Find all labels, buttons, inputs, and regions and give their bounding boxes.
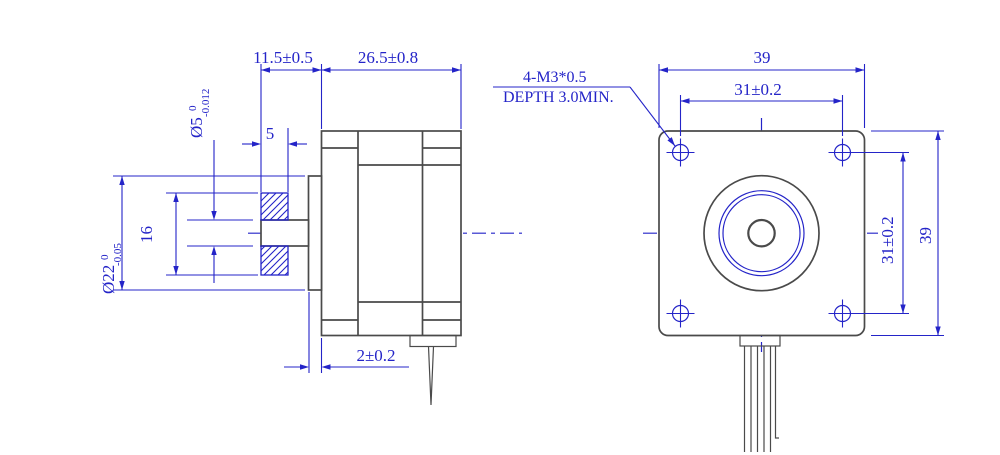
thread-note-line1: 4-M3*0.5 xyxy=(523,69,587,86)
dim-text-hole-pitch-vertical: 31±0.2 xyxy=(878,216,897,264)
dim-body-length: 26.5±0.8 xyxy=(322,48,462,129)
side-connector xyxy=(410,336,456,347)
dim-text-front-height: 39 xyxy=(916,227,935,244)
svg-text:16: 16 xyxy=(137,226,156,243)
dim-text-body-length: 26.5±0.8 xyxy=(358,48,418,67)
motor-body xyxy=(322,131,462,336)
pulley-section-bottom xyxy=(261,246,288,275)
dim-text-shaft-protrusion: 11.5±0.5 xyxy=(253,48,313,67)
front-view: 39 31±0.2 31±0.2 xyxy=(493,48,944,452)
side-view: 11.5±0.5 26.5±0.8 5 xyxy=(99,48,522,405)
dim-shaft-diameter: Ø5 0 -0.012 xyxy=(187,89,253,283)
dim-text-pilot-diameter: Ø22 0 -0.05 xyxy=(99,243,124,294)
front-lead-wires xyxy=(745,346,780,452)
thread-note: 4-M3*0.5 DEPTH 3.0MIN. xyxy=(493,69,677,148)
motor-body-outline xyxy=(322,131,462,336)
svg-text:0: 0 xyxy=(187,105,199,111)
dim-text-hole-pitch-horizontal: 31±0.2 xyxy=(734,80,782,99)
dim-text-pulley-width: 5 xyxy=(266,124,275,143)
front-connector xyxy=(740,336,780,347)
dim-shaft-protrusion: 11.5±0.5 xyxy=(253,48,321,192)
svg-text:-0.012: -0.012 xyxy=(200,89,212,117)
engineering-drawing: 11.5±0.5 26.5±0.8 5 xyxy=(0,0,1000,455)
svg-text:39: 39 xyxy=(916,227,935,244)
svg-text:Ø22: Ø22 xyxy=(99,265,118,294)
side-lead-wire xyxy=(429,347,434,406)
dim-text-pulley-diameter: 16 xyxy=(137,226,156,243)
dim-text-pilot-height: 2±0.2 xyxy=(356,346,395,365)
svg-text:-0.05: -0.05 xyxy=(112,243,124,266)
svg-text:0: 0 xyxy=(99,254,111,260)
dim-text-front-width: 39 xyxy=(754,48,771,67)
motor-shaft xyxy=(261,220,309,246)
dim-pulley-width: 5 xyxy=(242,124,307,192)
stepper-motor-drawing: 11.5±0.5 26.5±0.8 5 xyxy=(0,0,1000,455)
pulley-section-top xyxy=(261,193,288,220)
dim-text-shaft-diameter: Ø5 0 -0.012 xyxy=(187,89,212,138)
pilot-boss xyxy=(309,176,322,290)
thread-note-line2: DEPTH 3.0MIN. xyxy=(503,89,614,106)
flange-outline xyxy=(659,131,865,336)
dim-pulley-diameter: 16 xyxy=(137,193,258,275)
svg-text:Ø5: Ø5 xyxy=(187,117,206,138)
svg-text:31±0.2: 31±0.2 xyxy=(878,216,897,264)
